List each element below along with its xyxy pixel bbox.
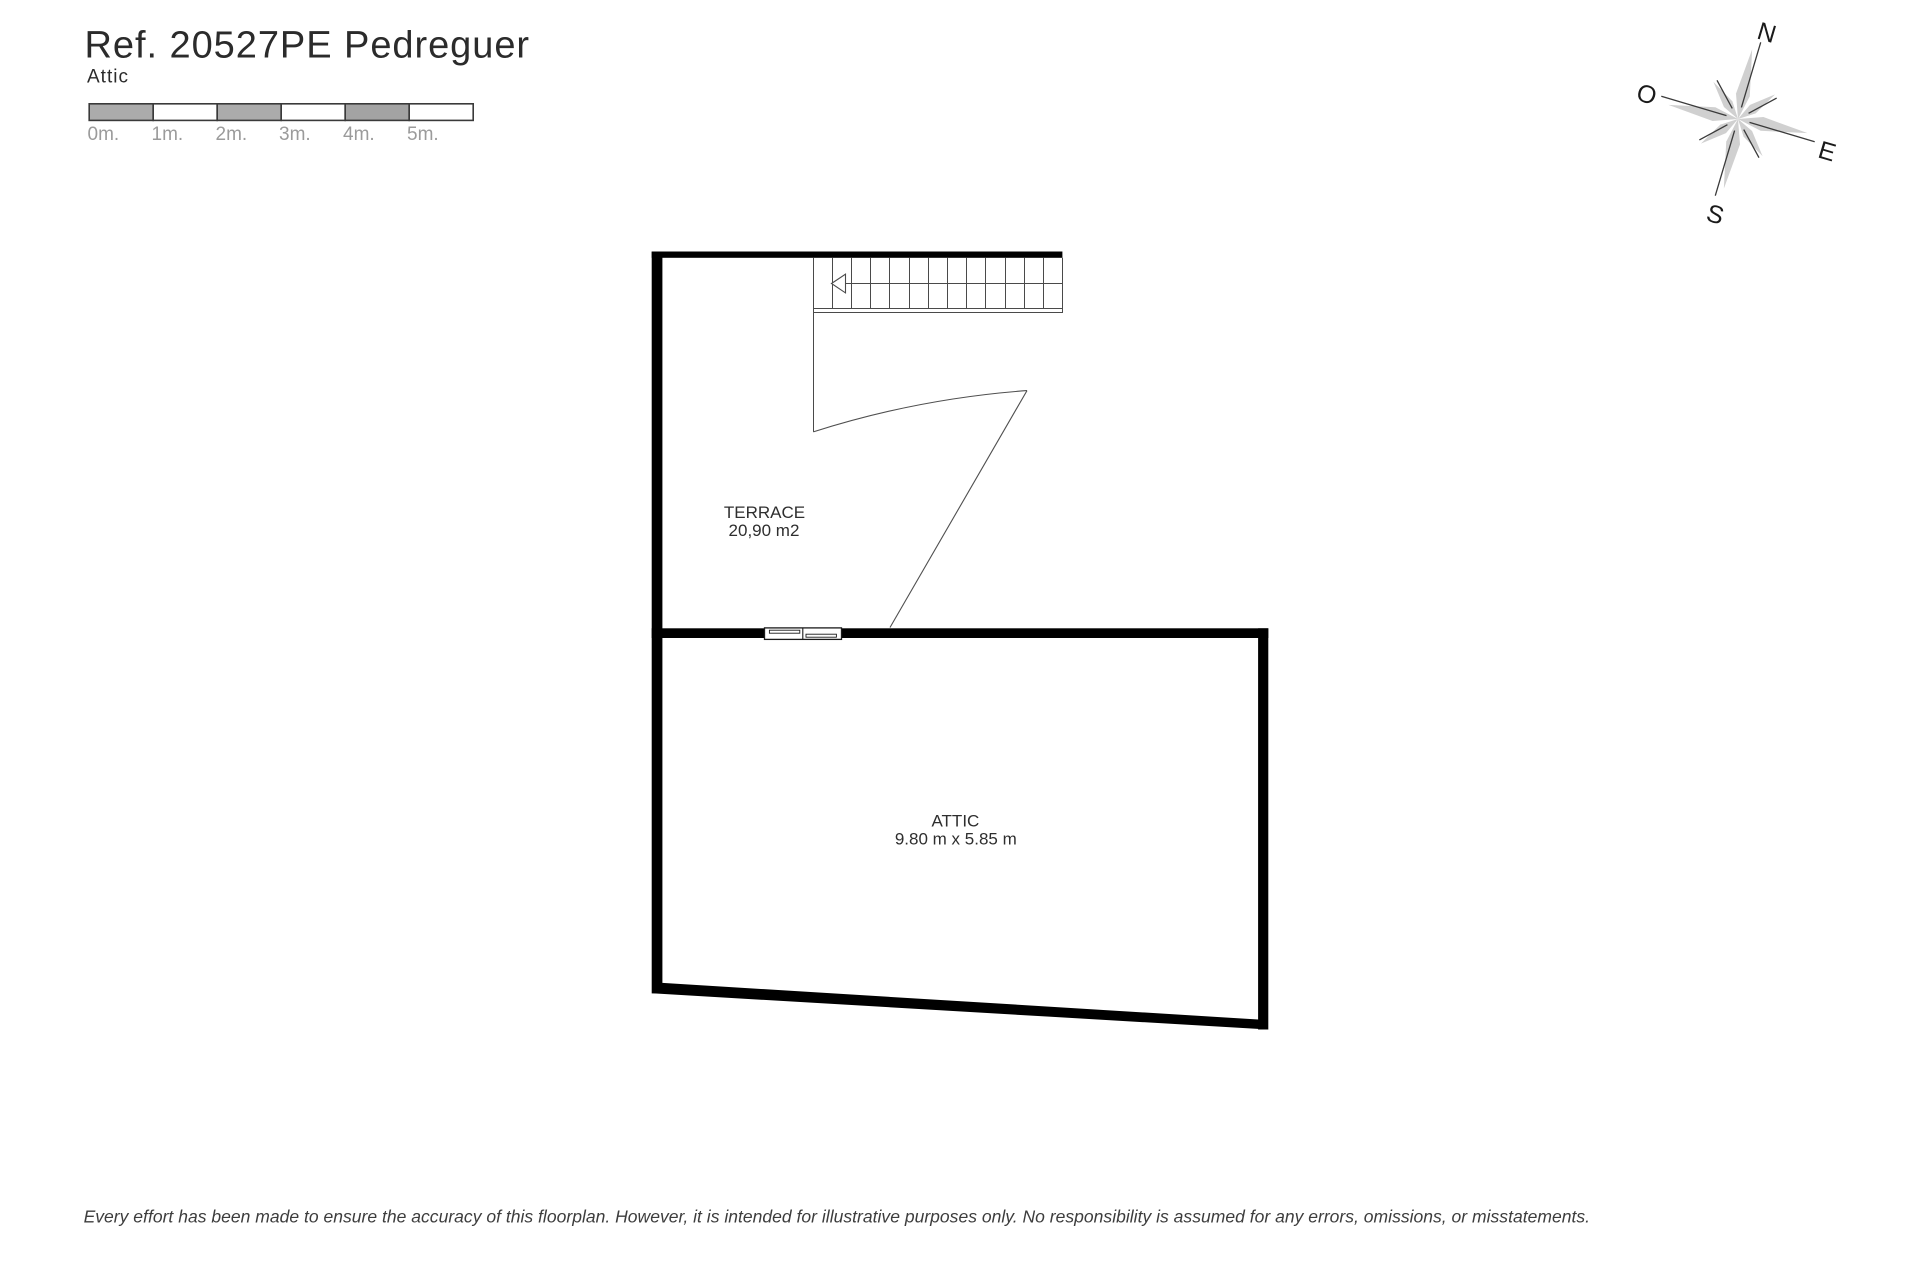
svg-text:5m.: 5m.: [407, 124, 439, 145]
svg-text:4m.: 4m.: [343, 124, 375, 145]
svg-text:Ref. 20527PE Pedreguer: Ref. 20527PE Pedreguer: [85, 25, 531, 67]
svg-text:20,90 m2: 20,90 m2: [729, 521, 800, 540]
svg-text:1m.: 1m.: [152, 124, 184, 145]
svg-text:S: S: [1703, 199, 1727, 231]
svg-text:2m.: 2m.: [216, 124, 248, 145]
svg-text:3m.: 3m.: [279, 124, 311, 145]
svg-text:9.80 m x 5.85 m: 9.80 m x 5.85 m: [895, 830, 1017, 849]
svg-text:O: O: [1633, 79, 1660, 111]
svg-text:ATTIC: ATTIC: [931, 812, 979, 831]
svg-text:E: E: [1815, 136, 1839, 168]
svg-text:TERRACE: TERRACE: [724, 503, 805, 522]
svg-text:Attic: Attic: [87, 67, 129, 88]
svg-text:0m.: 0m.: [88, 124, 120, 145]
svg-text:N: N: [1754, 17, 1779, 49]
svg-text:Every effort has been made to: Every effort has been made to ensure the…: [84, 1207, 1590, 1227]
